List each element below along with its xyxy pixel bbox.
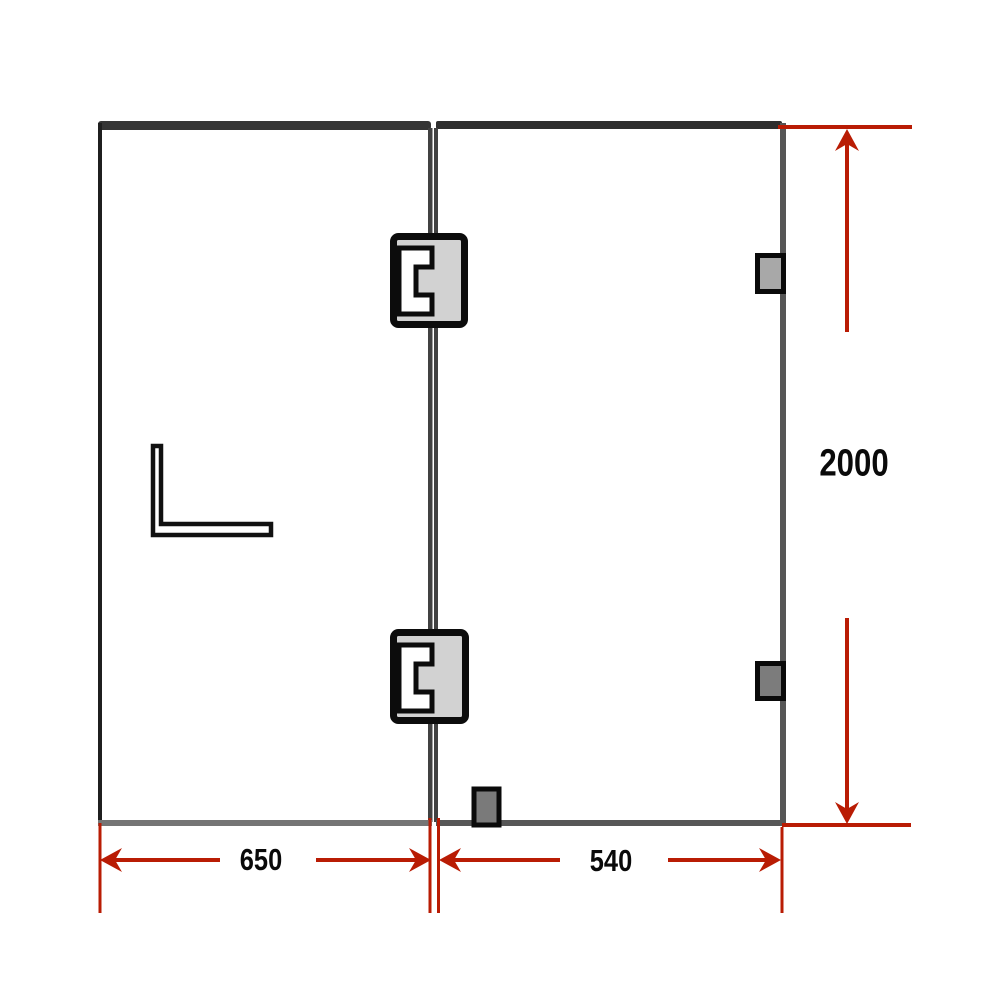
right-panel-right-edge: [780, 123, 786, 823]
right-wall-bracket-bottom-icon: [758, 664, 784, 699]
dimension-value-650: 650: [240, 842, 282, 878]
left-panel-left-edge: [98, 123, 102, 823]
right-wall-bracket-top-icon: [758, 256, 784, 292]
right-panel-top-edge: [436, 121, 782, 129]
dimension-label-left-width: 650: [235, 842, 287, 878]
top-hinge-icon: [394, 237, 465, 325]
left-panel-top-edge: [98, 121, 431, 130]
dimension-value-540: 540: [590, 843, 632, 879]
dimension-arrowheads: [100, 129, 859, 872]
dimension-lines: [100, 127, 912, 913]
dimension-value-2000: 2000: [819, 443, 888, 486]
bottom-hinge-icon: [394, 633, 466, 721]
floor-bracket-icon: [474, 789, 499, 825]
diagram-drawing: [0, 0, 1000, 1000]
l-shaped-handle-icon: [153, 446, 271, 535]
dimension-label-height: 2000: [812, 443, 897, 486]
shower-screen-diagram: 650 540 2000: [0, 0, 1000, 1000]
left-panel-bottom-edge: [98, 820, 432, 826]
dimension-label-right-width: 540: [585, 843, 637, 879]
